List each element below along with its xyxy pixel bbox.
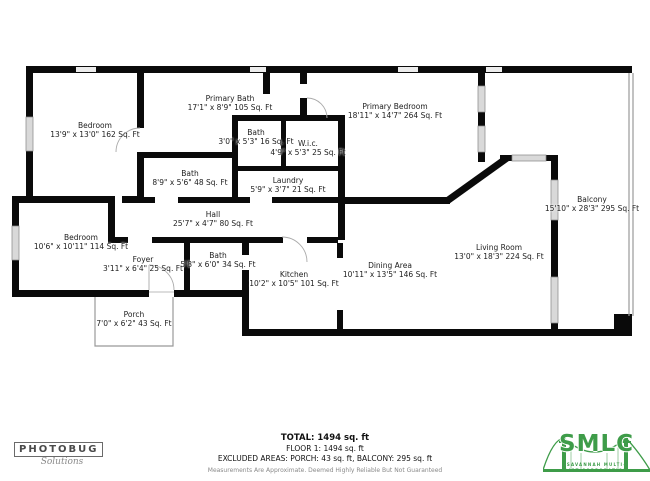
room-label-primary-bath: Primary Bath 17'1" x 8'9" 105 Sq. Ft: [188, 95, 273, 113]
room-label-bath-foyer: Bath 5'8" x 6'0" 34 Sq. Ft: [180, 252, 255, 270]
room-dims: 10'11" x 13'5" 146 Sq. Ft: [343, 271, 437, 280]
room-label-porch: Porch 7'0" x 6'2" 43 Sq. Ft: [96, 311, 171, 329]
room-label-wic: W.i.c. 4'9" x 5'3" 25 Sq. Ft: [270, 140, 345, 158]
room-dims: 5'8" x 6'0" 34 Sq. Ft: [180, 261, 255, 270]
room-dims: 18'11" x 14'7" 264 Sq. Ft: [348, 112, 442, 121]
room-label-primary-bedroom: Primary Bedroom 18'11" x 14'7" 264 Sq. F…: [348, 103, 442, 121]
room-dims: 13'0" x 18'3" 224 Sq. Ft: [454, 253, 544, 262]
room-label-bath-mid: Bath 8'9" x 5'6" 48 Sq. Ft: [152, 170, 227, 188]
smlc-subtext: SAVANNAH MULTI-LIST CORPORATION: [561, 462, 632, 474]
diagonal-wall: [447, 158, 507, 201]
photobug-tagline: Solutions: [14, 457, 110, 467]
room-label-living-room: Living Room 13'0" x 18'3" 224 Sq. Ft: [454, 244, 544, 262]
room-dims: 7'0" x 6'2" 43 Sq. Ft: [96, 320, 171, 329]
room-label-hall: Hall 25'7" x 4'7" 80 Sq. Ft: [173, 211, 253, 229]
room-dims: 8'9" x 5'6" 48 Sq. Ft: [152, 179, 227, 188]
room-label-laundry: Laundry 5'9" x 3'7" 21 Sq. Ft: [250, 177, 325, 195]
room-label-bedroom-2: Bedroom 10'6" x 10'11" 114 Sq. Ft: [34, 234, 128, 252]
smlc-logo: SMLC SAVANNAH MULTI-LIST CORPORATION: [543, 424, 650, 481]
room-label-dining-area: Dining Area 10'11" x 13'5" 146 Sq. Ft: [343, 262, 437, 280]
photobug-logo: PHOTOBUG Solutions: [14, 437, 110, 467]
room-label-kitchen: Kitchen 10'2" x 10'5" 101 Sq. Ft: [249, 271, 339, 289]
room-dims: 10'6" x 10'11" 114 Sq. Ft: [34, 243, 128, 252]
balcony-outline: [629, 73, 633, 316]
room-label-balcony: Balcony 15'10" x 28'3" 295 Sq. Ft: [545, 196, 639, 214]
walls-group: [12, 66, 632, 336]
smlc-initials: SMLC: [543, 431, 650, 457]
room-label-bedroom-1: Bedroom 13'9" x 13'0" 162 Sq. Ft: [50, 122, 140, 140]
room-dims: 4'9" x 5'3" 25 Sq. Ft: [270, 149, 345, 158]
room-dims: 25'7" x 4'7" 80 Sq. Ft: [173, 220, 253, 229]
room-label-foyer: Foyer 3'11" x 6'4" 25 Sq. Ft: [103, 256, 183, 274]
room-dims: 15'10" x 28'3" 295 Sq. Ft: [545, 205, 639, 214]
floorplan-page: Bedroom 13'9" x 13'0" 162 Sq. Ft Primary…: [0, 0, 650, 481]
room-dims: 17'1" x 8'9" 105 Sq. Ft: [188, 104, 273, 113]
room-dims: 10'2" x 10'5" 101 Sq. Ft: [249, 280, 339, 289]
room-dims: 3'11" x 6'4" 25 Sq. Ft: [103, 265, 183, 274]
photobug-wordmark: PHOTOBUG: [14, 442, 103, 457]
room-dims: 5'9" x 3'7" 21 Sq. Ft: [250, 186, 325, 195]
room-dims: 13'9" x 13'0" 162 Sq. Ft: [50, 131, 140, 140]
